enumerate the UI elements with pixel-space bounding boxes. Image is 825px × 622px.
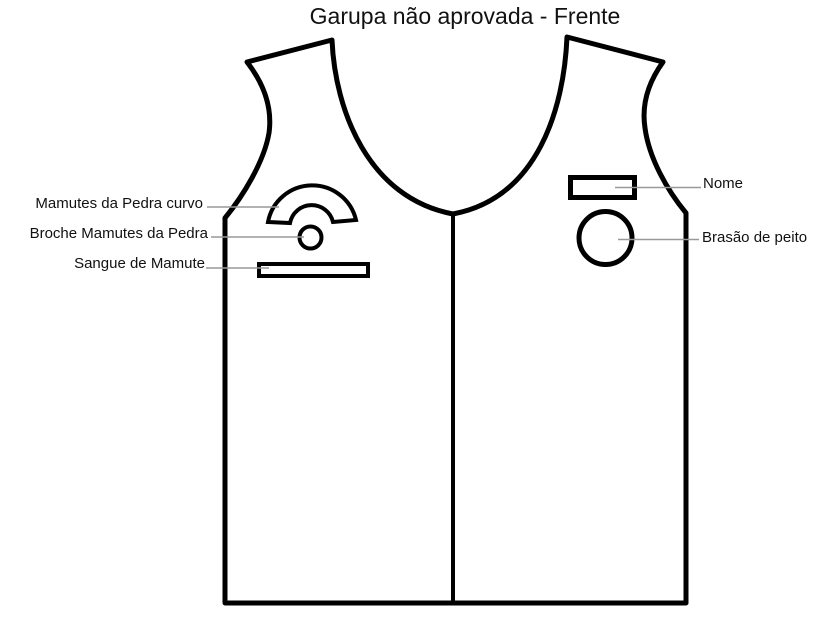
vest-front-drawing [0,0,825,622]
label-blood-strip: Sangue de Mamute [74,256,205,272]
label-chest-badge: Brasão de peito [702,230,807,246]
label-rocker-patch: Mamutes da Pedra curvo [35,196,203,212]
vest-diagram-canvas: Garupa não aprovada - Frente Mamutes da … [0,0,825,622]
vest-outline [225,37,686,603]
label-name-strip: Nome [703,176,743,192]
label-brooch-pin: Broche Mamutes da Pedra [30,226,208,242]
chest-badge-shape [579,212,632,265]
blood-strip-shape [259,264,368,276]
